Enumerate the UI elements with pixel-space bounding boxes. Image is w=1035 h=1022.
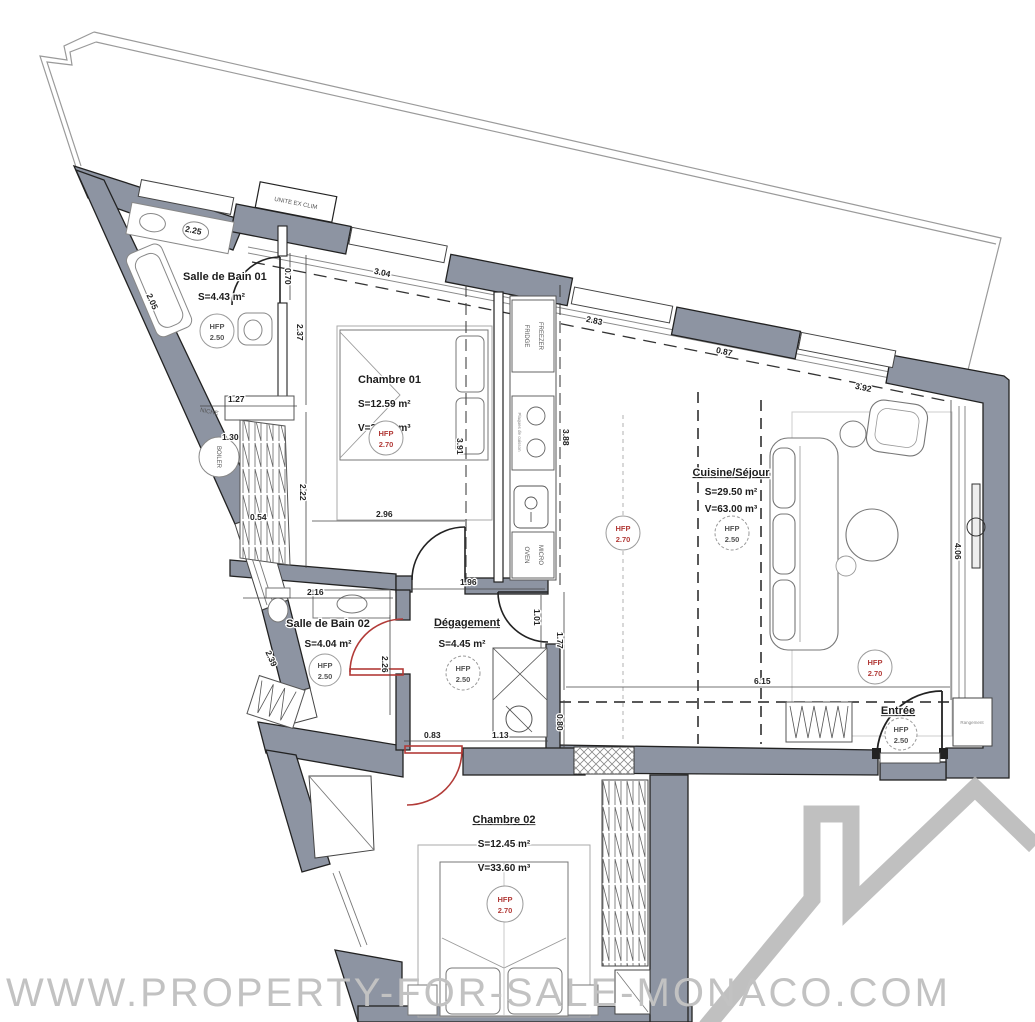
- cuisine-area: S=29.50 m²: [705, 487, 758, 498]
- dim: 1.30: [222, 432, 239, 442]
- fridge-label: FRIDGE: [523, 325, 529, 348]
- hfp-value: 2.50: [456, 675, 471, 684]
- sdb02-name: Salle de Bain 02: [286, 618, 370, 630]
- freezer-label: FREEZER: [537, 322, 543, 351]
- dim: 0.80: [555, 714, 565, 731]
- dim: 3.91: [455, 438, 465, 455]
- hfp-sdb01: HFP 2.50: [200, 314, 234, 348]
- sdb02-toilet-tank: [266, 588, 290, 598]
- sdb01-area: S=4.43 m²: [198, 292, 246, 303]
- fridge-freezer-box: [512, 300, 554, 372]
- kitchen-column: FRIDGE FREEZER Plaques de cuisson OVEN M…: [494, 292, 556, 582]
- sdb01-name: Salle de Bain 01: [183, 271, 267, 283]
- hfp-label: HFP: [210, 322, 225, 331]
- room-chambre01: [337, 326, 492, 580]
- entrance-threshold: [880, 753, 940, 763]
- dim: 2.16: [307, 587, 324, 597]
- dim: 2.37: [295, 324, 305, 341]
- wall-degagement-right: [546, 644, 560, 750]
- dim: 1.13: [492, 730, 509, 740]
- oven-label: OVEN: [523, 546, 529, 563]
- sdb02-area: S=4.04 m²: [305, 639, 353, 650]
- entry-closet: [786, 702, 852, 742]
- right-bay: [959, 406, 965, 742]
- sdb02-toilet-bowl: [268, 598, 288, 622]
- room-living: [560, 392, 985, 744]
- floor-plan-canvas: UNITE EX CLIM: [0, 0, 1035, 1022]
- wall-sdb02-right-a: [396, 590, 410, 620]
- hob-label: Plaques de cuisson: [517, 412, 522, 452]
- dim: 1.96: [460, 577, 477, 587]
- chambre01-area: S=12.59 m²: [358, 399, 411, 410]
- dim: 4.06: [953, 543, 963, 560]
- dim: 2.96: [376, 509, 393, 519]
- hfp-value: 2.70: [868, 669, 883, 678]
- dim: 1.27: [228, 394, 245, 404]
- dim: 0.54: [250, 512, 267, 522]
- hfp-cuisine-250: HFP 2.50: [715, 516, 749, 550]
- cuisine-name: Cuisine/Séjour: [692, 467, 770, 479]
- dim: 1.01: [532, 609, 542, 626]
- window-top-1: [349, 227, 447, 262]
- dim: 2.22: [298, 484, 308, 501]
- chambre02-name: Chambre 02: [473, 814, 536, 826]
- oven-box: [512, 532, 554, 578]
- dim: 3.04: [373, 266, 392, 279]
- hfp-value: 2.50: [318, 672, 333, 681]
- hfp-label: HFP: [498, 895, 513, 904]
- kitchen-sink: [514, 486, 548, 528]
- hfp-label: HFP: [616, 524, 631, 533]
- dim: 3.88: [561, 429, 571, 446]
- bathroom1-toilet: [238, 313, 272, 345]
- wall-corridor-bottom: [463, 748, 585, 775]
- chambre01-pillow-1: [456, 336, 484, 392]
- hfp-label: HFP: [456, 664, 471, 673]
- hfp-label: HFP: [868, 658, 883, 667]
- hfp-label: HFP: [894, 725, 909, 734]
- entree-name: Entrée: [881, 705, 915, 717]
- hfp-degagement: HFP 2.50: [446, 656, 480, 690]
- sofa: [770, 438, 838, 650]
- degagement-area: S=4.45 m²: [439, 639, 487, 650]
- coffee-table: [846, 509, 898, 561]
- hfp-sejour-right: HFP 2.70: [858, 650, 892, 684]
- wall-entrance-landing: [880, 762, 946, 780]
- wall-kitchen-divider: [494, 292, 503, 582]
- dim: 3.92: [854, 381, 873, 394]
- small-table: [836, 556, 856, 576]
- hfp-value: 2.50: [210, 333, 225, 342]
- degagement-name: Dégagement: [434, 617, 500, 629]
- hfp-label: HFP: [725, 524, 740, 533]
- wall-crosshatch: [574, 747, 634, 774]
- hfp-sdb02: HFP 2.50: [309, 654, 341, 686]
- dim: 0.70: [283, 268, 293, 285]
- window-chambre02-bay: [309, 776, 374, 858]
- chambre01-name: Chambre 01: [358, 374, 421, 386]
- rangement-label: Rangement: [960, 720, 984, 725]
- hfp-label: HFP: [379, 429, 394, 438]
- dim: 2.83: [585, 314, 604, 327]
- chambre02-door-red: [405, 746, 462, 805]
- armchair: [865, 398, 930, 458]
- entree-storage: Rangement: [953, 698, 992, 746]
- cuisine-volume: V=63.00 m³: [705, 504, 758, 515]
- chambre02-wardrobe: [602, 780, 648, 966]
- dim: 2.26: [380, 656, 390, 673]
- hfp-value: 2.70: [616, 535, 631, 544]
- dim: 0.83: [424, 730, 441, 740]
- watermark-text: WWW.PROPERTY-FOR-SALE-MONACO.COM: [6, 971, 951, 1015]
- wall-pier-3: [671, 307, 800, 359]
- dim: 0.87: [715, 345, 734, 358]
- laundry-unit: [493, 648, 547, 737]
- window-top-3: [798, 332, 895, 367]
- hfp-value: 2.50: [894, 736, 909, 745]
- hfp-value: 2.70: [379, 440, 394, 449]
- wall-sdb01-right-b: [278, 303, 287, 398]
- hfp-chambre01: HFP 2.70: [369, 421, 403, 455]
- hfp-value: 2.70: [498, 906, 513, 915]
- boiler-label: BOILER: [215, 446, 221, 469]
- side-table: [840, 421, 866, 447]
- micro-label: MICRO: [537, 545, 543, 565]
- hfp-entree: HFP 2.50: [885, 718, 917, 750]
- chambre01-door: [412, 527, 465, 580]
- wall-sdb02-right-b: [396, 674, 410, 750]
- hfp-label: HFP: [318, 661, 333, 670]
- floor-plan-page: UNITE EX CLIM: [0, 0, 1035, 1022]
- dim: 1.77: [555, 632, 565, 649]
- hfp-chambre02: HFP 2.70: [487, 886, 523, 922]
- wall-sdb01-right-a: [278, 226, 287, 256]
- bay-door-leaf: [972, 484, 980, 568]
- sdb01-wardrobe: [240, 420, 290, 565]
- chambre02-area: S=12.45 m²: [478, 839, 531, 850]
- hfp-value: 2.50: [725, 535, 740, 544]
- hfp-cuisine-270: HFP 2.70: [606, 516, 640, 550]
- chambre02-volume: V=33.60 m³: [478, 863, 531, 874]
- dim: 6.15: [754, 676, 771, 686]
